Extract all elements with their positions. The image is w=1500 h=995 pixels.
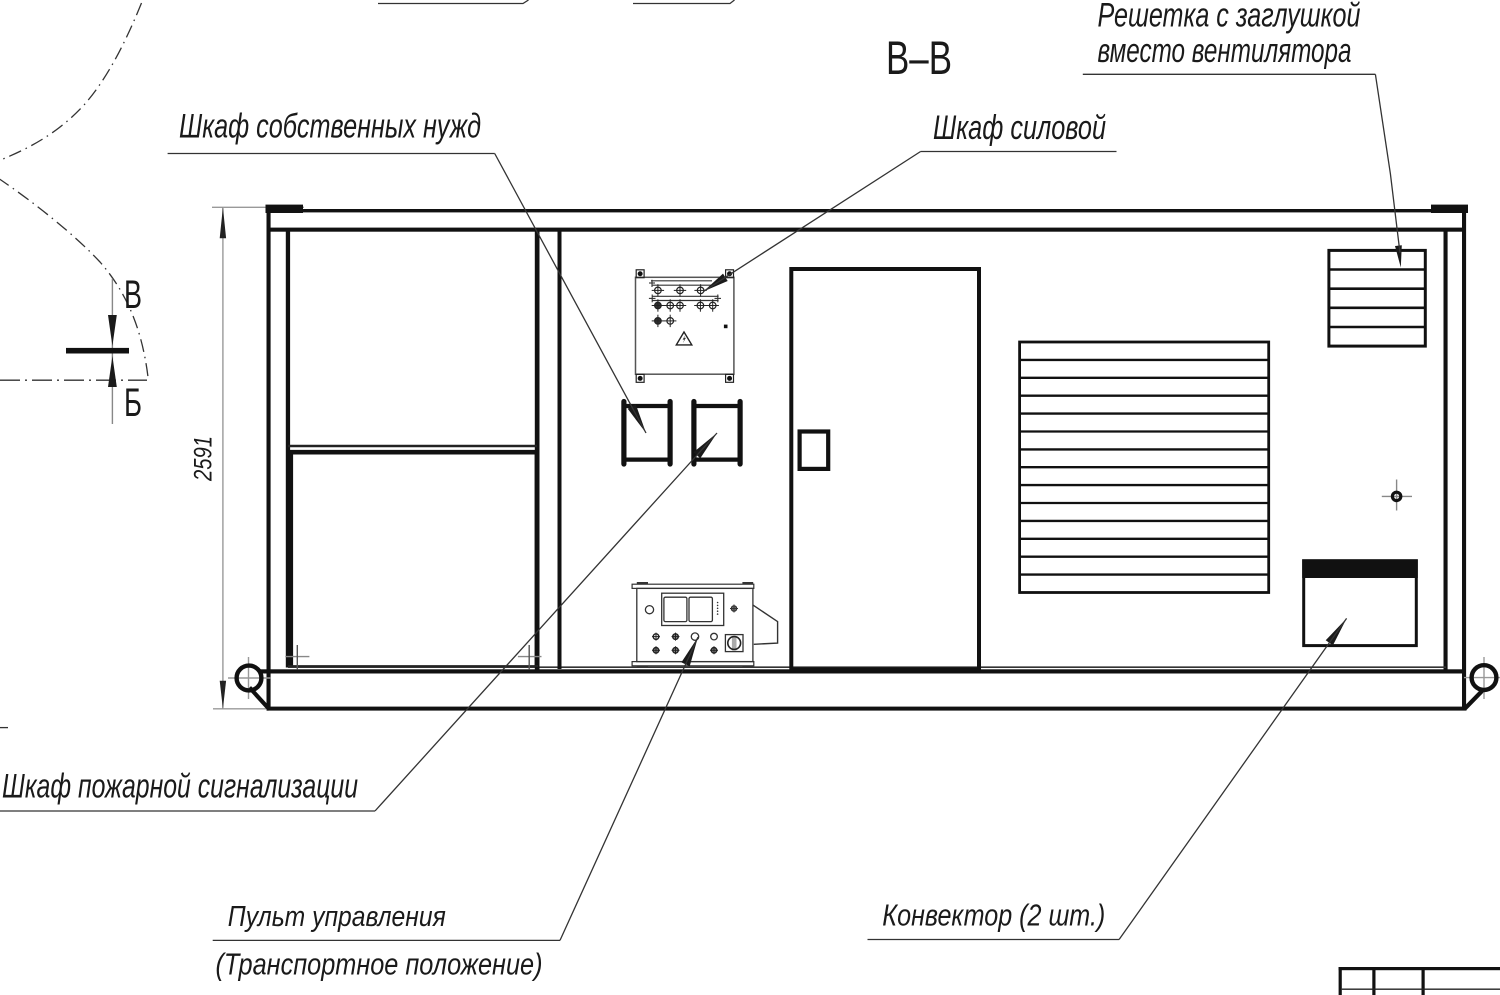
svg-text:Пульт управления: Пульт управления [228, 901, 446, 933]
svg-text:Конвектор (2 шт.): Конвектор (2 шт.) [882, 898, 1105, 933]
svg-text:В: В [124, 273, 142, 317]
svg-text:2591: 2591 [190, 436, 218, 482]
svg-text:вместо вентилятора: вместо вентилятора [1098, 32, 1352, 70]
svg-text:Шкаф пожарной сигнализации: Шкаф пожарной сигнализации [2, 768, 358, 806]
svg-text:Шкаф силовой: Шкаф силовой [933, 109, 1106, 147]
svg-text:Решетка с заглушкой: Решетка с заглушкой [1098, 0, 1361, 34]
svg-text:Шкаф собственных нужд: Шкаф собственных нужд [179, 108, 481, 146]
svg-text:В–В: В–В [886, 31, 952, 84]
svg-text:Б: Б [124, 381, 142, 425]
svg-text:(Транспортное положение): (Транспортное положение) [216, 947, 543, 982]
